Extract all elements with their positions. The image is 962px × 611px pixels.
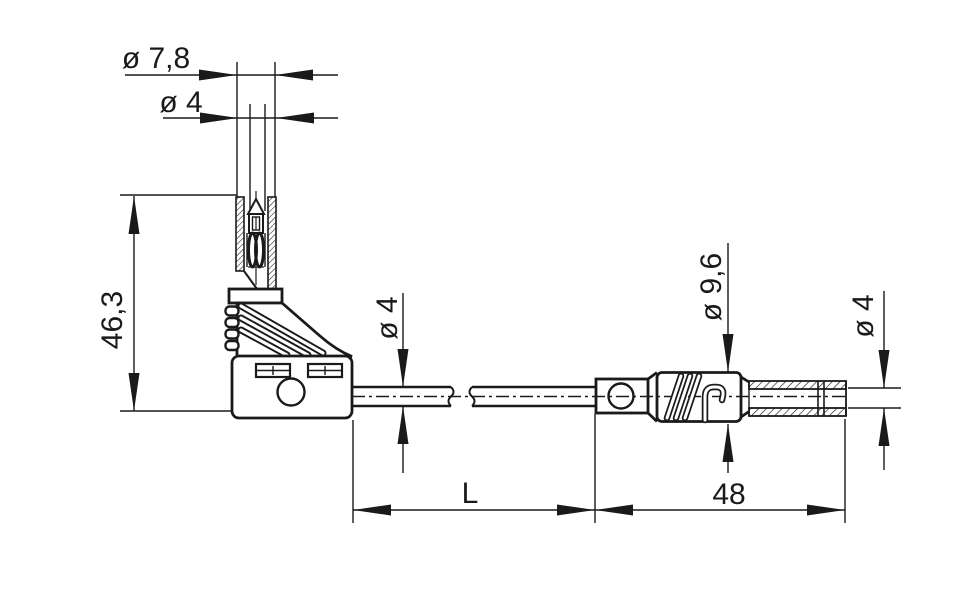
grip-rib (226, 330, 239, 339)
grip-rib (226, 341, 239, 350)
grip-rib (226, 307, 239, 316)
dim-label-cable-diameter: ø 4 (371, 296, 404, 339)
extension-line-pin (848, 388, 901, 408)
dim-label-cable-length: L (462, 477, 479, 510)
dim-label-plug-length: 48 (712, 478, 745, 511)
dim-label-tip-diameter: ø 4 (159, 86, 202, 119)
dim-label-body-diameter: ø 9,6 (695, 253, 728, 321)
extension-line-sleeve (237, 62, 275, 197)
dimension-annotations: ø 7,8 ø 4 46,3 ø 4 ø 9,6 ø 4 L 48 (96, 42, 901, 523)
right-angle-plug (226, 191, 353, 418)
plug-boot (226, 289, 353, 418)
plug-pin (749, 381, 846, 416)
dim-label-height: 46,3 (96, 291, 129, 349)
extension-line-length (353, 414, 845, 523)
grip-rib (226, 318, 239, 327)
dim-label-pin-diameter: ø 4 (847, 294, 880, 337)
dimension-drawing-cable-assembly: ø 7,8 ø 4 46,3 ø 4 ø 9,6 ø 4 L 48 (0, 0, 962, 611)
technical-drawing-page: ø 7,8 ø 4 46,3 ø 4 ø 9,6 ø 4 L 48 (0, 0, 962, 611)
dim-label-sleeve-diameter: ø 7,8 (122, 42, 190, 75)
extension-line-tip (250, 104, 265, 211)
